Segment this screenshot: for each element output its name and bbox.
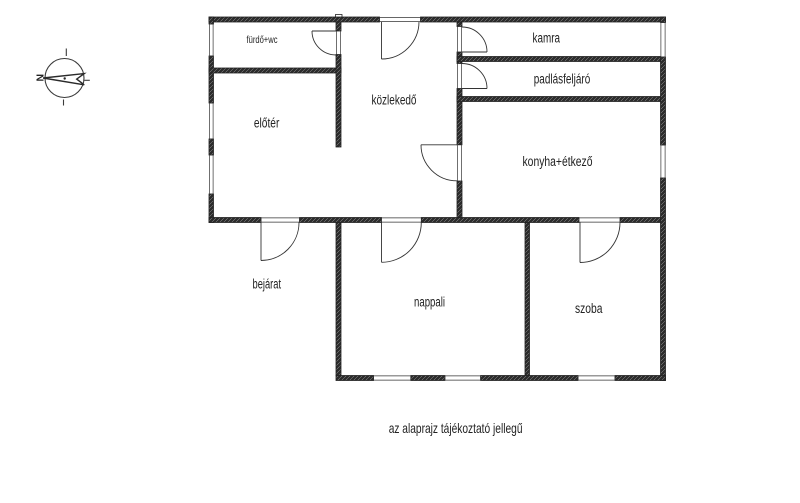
svg-text:kamra: kamra xyxy=(533,31,561,46)
svg-text:bejárat: bejárat xyxy=(253,277,282,292)
svg-text:előtér: előtér xyxy=(254,116,280,131)
svg-text:szoba: szoba xyxy=(575,301,603,316)
svg-text:padlásfeljáró: padlásfeljáró xyxy=(534,72,591,87)
svg-text:nappali: nappali xyxy=(414,295,445,310)
svg-text:N: N xyxy=(35,74,47,82)
svg-text:fürdő+wc: fürdő+wc xyxy=(247,35,278,46)
svg-text:konyha+étkező: konyha+étkező xyxy=(523,154,593,169)
svg-text:közlekedő: közlekedő xyxy=(372,92,417,107)
svg-text:az alaprajz tájékoztató jelleg: az alaprajz tájékoztató jellegű xyxy=(389,420,523,436)
